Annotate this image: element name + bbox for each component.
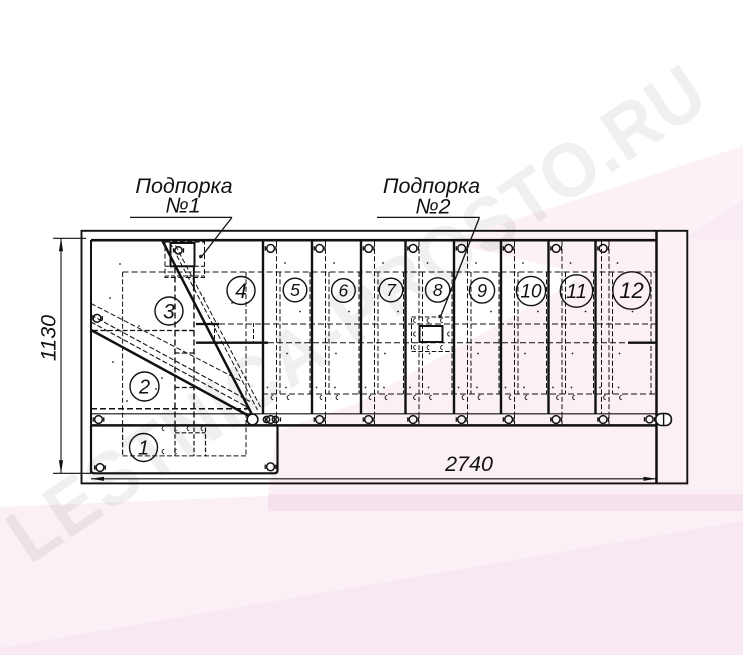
svg-text:5: 5 (290, 280, 300, 300)
svg-text:4: 4 (235, 280, 247, 303)
svg-text:11: 11 (566, 281, 587, 303)
svg-text:1: 1 (138, 438, 149, 460)
svg-text:8: 8 (433, 280, 443, 300)
svg-text:12: 12 (619, 278, 643, 303)
svg-text:3: 3 (163, 300, 175, 323)
svg-text:1130: 1130 (37, 315, 61, 361)
svg-text:№1: №1 (165, 194, 200, 218)
svg-text:7: 7 (386, 280, 397, 300)
svg-text:№2: №2 (415, 195, 450, 219)
svg-text:9: 9 (477, 281, 487, 301)
svg-text:10: 10 (520, 282, 542, 303)
svg-text:2740: 2740 (444, 452, 493, 476)
svg-text:6: 6 (339, 281, 349, 301)
svg-text:2: 2 (138, 377, 150, 399)
